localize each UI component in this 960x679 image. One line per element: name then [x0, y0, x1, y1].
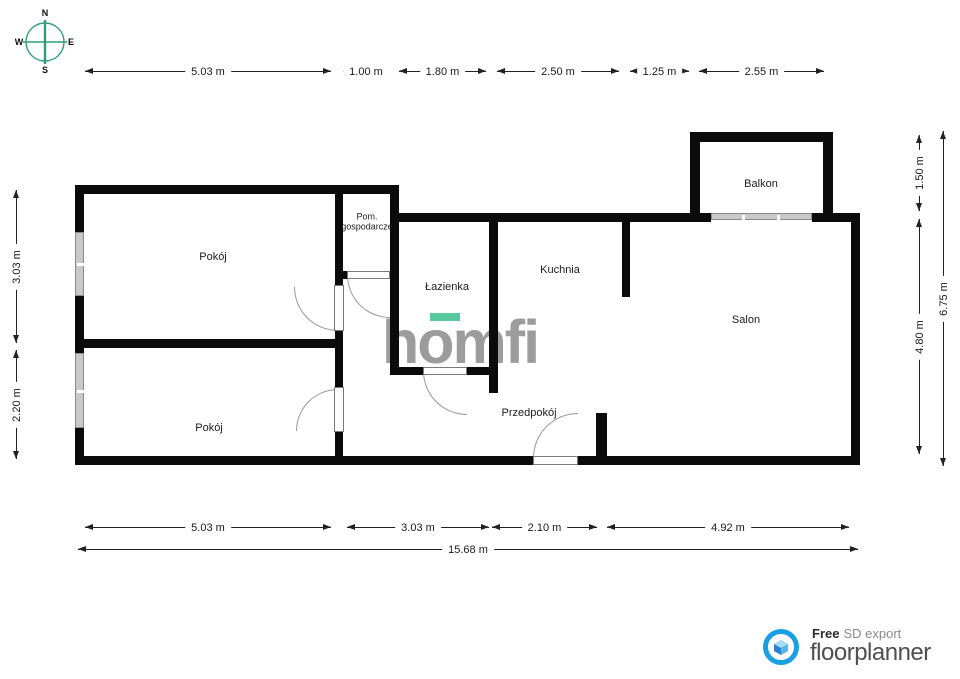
wall-top-middle — [390, 213, 711, 222]
compass-south-label: S — [42, 65, 48, 75]
wall-exterior-right — [851, 213, 860, 465]
room-label-pokoj-top: Pokój — [199, 251, 227, 263]
wall-balkon-top — [690, 132, 833, 142]
floorplan-canvas: N E S W homfi Pokój Pom. gospodarcze Łaz — [0, 0, 960, 679]
room-label-balkon: Balkon — [744, 178, 778, 190]
room-label-przedpokoj: Przedpokój — [501, 407, 556, 419]
dimension-bottom-1: 5.03 m — [85, 527, 331, 528]
door-leaf-pokoj-bottom — [334, 387, 344, 432]
room-label-salon: Salon — [732, 314, 760, 326]
dimension-right-2: 4.80 m — [919, 219, 920, 454]
door-leaf-lazienka — [423, 367, 467, 375]
compass-rose — [22, 19, 68, 65]
dimension-bottom-4: 4.92 m — [607, 527, 849, 528]
floorplanner-house-icon — [771, 637, 791, 657]
compass-north-label: N — [42, 8, 49, 18]
dimension-bottom-3: 2.10 m — [492, 527, 597, 528]
door-arc-lazienka — [423, 371, 467, 415]
wall-balkon-left — [690, 132, 700, 218]
door-leaf-pomgosp — [347, 271, 390, 279]
dimension-right-total: 6.75 m — [943, 131, 944, 466]
door-arc-pokoj-bottom — [296, 389, 338, 431]
homfi-watermark: homfi — [382, 312, 538, 373]
dimension-left-1: 3.03 m — [16, 190, 17, 343]
room-label-lazienka: Łazienka — [425, 281, 469, 293]
wall-kuchnia-salon-divider — [622, 222, 630, 297]
dimension-top-4: 2.50 m — [497, 71, 619, 72]
door-leaf-pokoj-top — [334, 285, 344, 331]
compass-east-label: E — [68, 37, 74, 47]
wall-exterior-bottom — [75, 456, 860, 465]
door-arc-pomgosp — [347, 275, 390, 318]
homfi-macron-accent — [430, 313, 460, 321]
dimension-top-2: 1.00 m — [343, 71, 389, 72]
door-arc-pokoj-top — [294, 287, 338, 331]
room-label-pom-gospodarcze: Pom. gospodarcze — [338, 212, 396, 233]
window-pokoj-top — [75, 232, 84, 296]
dimension-top-6: 2.55 m — [699, 71, 824, 72]
wall-przedpokoj-stub — [596, 413, 607, 456]
wall-between-pokoje — [84, 339, 335, 348]
compass-west-label: W — [15, 37, 24, 47]
room-label-pokoj-bottom: Pokój — [195, 422, 223, 434]
dimension-top-1: 5.03 m — [85, 71, 331, 72]
dimension-left-2: 2.20 m — [16, 350, 17, 459]
wall-balkon-right — [823, 132, 833, 218]
dimension-bottom-total: 15.68 m — [78, 549, 858, 550]
door-arc-entrance — [533, 413, 578, 458]
dimension-top-5: 1.25 m — [630, 71, 689, 72]
door-leaf-entrance — [533, 456, 578, 465]
wall-exterior-top-left — [75, 185, 399, 194]
room-label-kuchnia: Kuchnia — [540, 264, 580, 276]
dimension-bottom-2: 3.03 m — [347, 527, 489, 528]
dimension-top-3: 1.80 m — [399, 71, 486, 72]
floorplanner-wordmark: floorplanner — [810, 641, 931, 665]
dimension-right-1: 1.50 m — [919, 135, 920, 211]
window-balkon — [711, 213, 812, 220]
window-pokoj-bottom — [75, 353, 84, 428]
